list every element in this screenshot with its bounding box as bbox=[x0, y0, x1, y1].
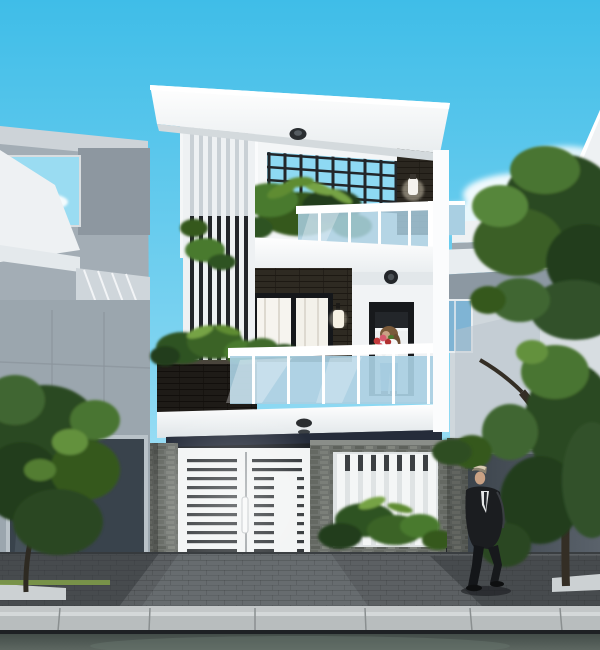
grass-strip-left bbox=[0, 580, 110, 585]
road bbox=[0, 634, 600, 650]
left-building-dark-band bbox=[78, 148, 150, 235]
architectural-render-image bbox=[0, 0, 600, 650]
curb bbox=[0, 606, 600, 634]
balcony-glass-railing bbox=[226, 343, 440, 404]
slab-downlight bbox=[296, 419, 312, 428]
main-house-right-sidewall bbox=[433, 150, 449, 432]
